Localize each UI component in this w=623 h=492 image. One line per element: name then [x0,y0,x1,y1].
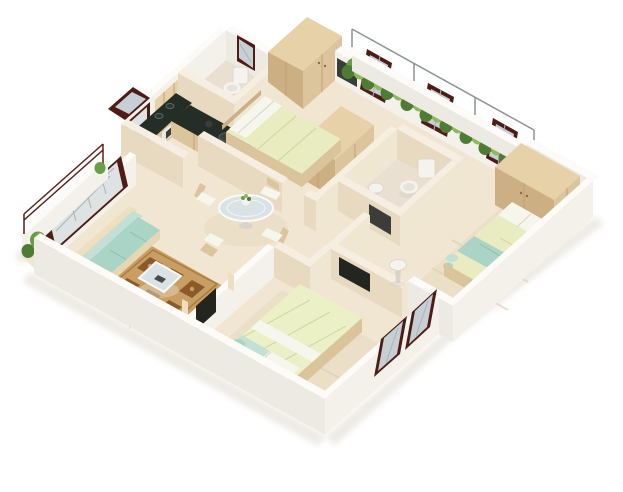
wardrobe-handle [526,195,528,197]
basin-top [390,260,407,271]
floor-plan-image [0,0,623,492]
floor-plan-render [0,0,623,492]
wall-stub-face [304,195,316,231]
wardrobe-handle [318,62,320,64]
crumpled-blanket [446,254,458,262]
toilet-seat [403,183,415,191]
wall-post [228,272,234,291]
wardrobe-handle [520,192,522,194]
toilet-seat [227,85,238,92]
centerpiece-leaves [247,197,251,201]
stove-burner [166,104,174,109]
centerpiece-leaves [244,194,248,198]
shrub [22,244,35,258]
kettle [206,121,213,128]
basin-shadow [390,281,406,287]
stove-burner [155,114,163,119]
rug-square-dot [190,287,194,291]
toilet-tank [418,159,435,178]
shrub [95,162,106,174]
toilet-tank [233,67,248,84]
table-base [239,223,253,229]
wardrobe-handle [324,65,326,67]
